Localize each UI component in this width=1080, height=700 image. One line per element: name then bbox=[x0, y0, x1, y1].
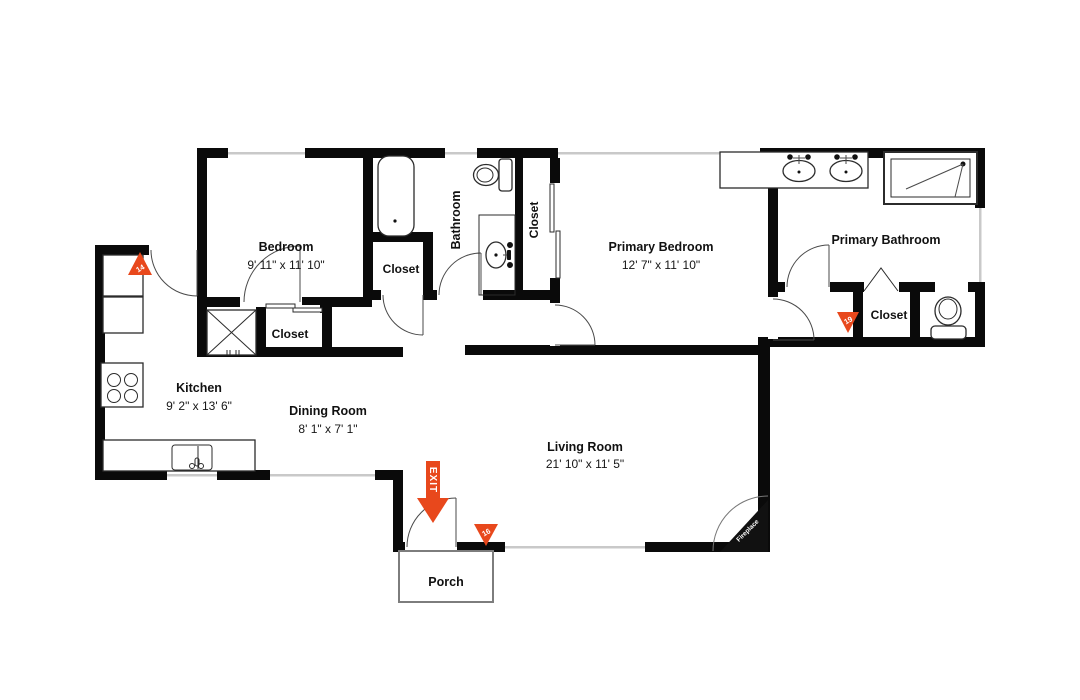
bathroom-closet-label: Closet bbox=[383, 262, 420, 276]
floor-plan-page: Fireplace EXIT 14 19 16 Bedroom 9' 11" x… bbox=[0, 0, 1080, 700]
double-vanity bbox=[720, 152, 868, 188]
kitchen-cabinet bbox=[103, 297, 143, 333]
bathtub bbox=[378, 156, 414, 236]
kitchen-fixtures bbox=[101, 255, 256, 471]
exit-arrow[interactable]: EXIT bbox=[417, 461, 449, 523]
living-room-dims: 21' 10" x 11' 5" bbox=[546, 457, 624, 471]
door-kitchen-entry bbox=[151, 250, 197, 296]
window bbox=[505, 542, 645, 552]
living-room-label: Living Room bbox=[547, 440, 623, 454]
window bbox=[975, 208, 985, 282]
bedroom-closet-label: Closet bbox=[272, 327, 309, 341]
primary-bathroom-label: Primary Bathroom bbox=[831, 233, 940, 247]
bedroom-label: Bedroom bbox=[259, 240, 314, 254]
primary-closet-label: Closet bbox=[871, 308, 908, 322]
stove bbox=[101, 363, 143, 407]
window bbox=[445, 148, 477, 158]
toilet bbox=[474, 159, 513, 191]
floor-plan: Fireplace EXIT 14 19 16 Bedroom 9' 11" x… bbox=[0, 0, 1080, 700]
kitchen-dims: 9' 2" x 13' 6" bbox=[166, 399, 232, 413]
shower bbox=[884, 152, 977, 204]
dining-room-dims: 8' 1" x 7' 1" bbox=[298, 422, 357, 436]
exit-label: EXIT bbox=[427, 467, 438, 493]
primary-bedroom-label: Primary Bedroom bbox=[609, 240, 714, 254]
kitchen-label: Kitchen bbox=[176, 381, 222, 395]
window bbox=[228, 148, 305, 158]
primary-toilet bbox=[931, 297, 966, 339]
window bbox=[270, 470, 375, 480]
door-bathroom bbox=[439, 253, 481, 295]
washer-dryer-box bbox=[207, 310, 256, 355]
door-primary-bathroom bbox=[787, 245, 829, 287]
porch-label: Porch bbox=[428, 575, 463, 589]
door-bedroom bbox=[244, 246, 300, 302]
vanity-sink bbox=[479, 215, 515, 295]
door-primary-bedroom-hall bbox=[555, 305, 595, 345]
door-primary-bedroom-ensuite bbox=[773, 299, 814, 340]
primary-bedroom-dims: 12' 7" x 11' 10" bbox=[622, 258, 700, 272]
door-swings bbox=[151, 184, 898, 547]
hall-closet-label: Closet bbox=[527, 202, 541, 239]
bathroom-label: Bathroom bbox=[449, 190, 463, 249]
bedroom-dims: 9' 11" x 11' 10" bbox=[247, 258, 324, 272]
dining-room-label: Dining Room bbox=[289, 404, 367, 418]
kitchen-counter-sink bbox=[103, 440, 255, 471]
door-hall-closet bbox=[383, 295, 423, 335]
